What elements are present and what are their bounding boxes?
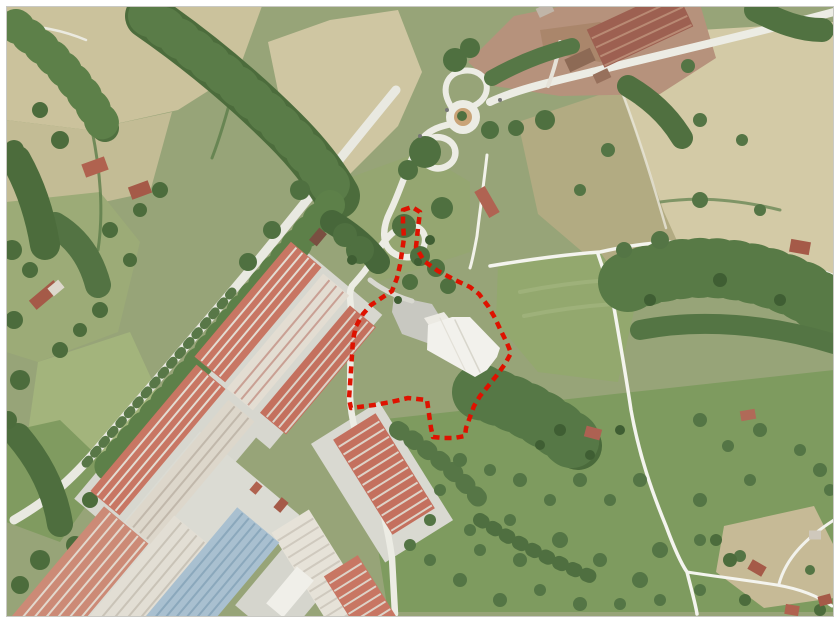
tree [11, 576, 29, 594]
tree [744, 474, 756, 486]
tree [5, 311, 23, 329]
tree [152, 182, 168, 198]
tree [573, 473, 587, 487]
tree [51, 131, 69, 149]
tree [22, 262, 38, 278]
tree [513, 473, 527, 487]
tree [710, 534, 722, 546]
tree [654, 594, 666, 606]
tree [693, 413, 707, 427]
tree [493, 593, 507, 607]
tree [2, 240, 22, 260]
page [0, 0, 840, 630]
tree [616, 242, 632, 258]
tree [464, 524, 476, 536]
tree [434, 484, 446, 496]
tree [681, 59, 695, 73]
tree [133, 203, 147, 217]
roundabout-tree [457, 111, 467, 121]
tree [504, 514, 516, 526]
tree [263, 221, 281, 239]
tree-dark [394, 296, 402, 304]
tree-dark [774, 294, 786, 306]
tree [404, 539, 416, 551]
tree [574, 184, 586, 196]
tree [651, 231, 669, 249]
tree [552, 532, 568, 548]
tree [692, 192, 708, 208]
tree-dark [713, 273, 727, 287]
tree [30, 550, 50, 570]
tree [484, 464, 496, 476]
tree [290, 180, 310, 200]
tree-dark [414, 258, 422, 266]
tree [15, 171, 33, 189]
tree [73, 323, 87, 337]
tree [453, 573, 467, 587]
tree [424, 514, 436, 526]
tree [431, 197, 453, 219]
tree [604, 494, 616, 506]
tree [102, 222, 118, 238]
tree [10, 370, 30, 390]
tree-dark [554, 424, 566, 436]
tree [614, 598, 626, 610]
tree [693, 113, 707, 127]
tree [440, 278, 456, 294]
vehicle [445, 108, 449, 112]
tree [633, 473, 647, 487]
vehicle [418, 134, 422, 138]
tree [481, 121, 499, 139]
tree [424, 554, 436, 566]
tree [694, 584, 706, 596]
aerial-photo-frame [0, 0, 840, 630]
tree-dark [585, 450, 595, 460]
tree-dark [425, 235, 435, 245]
aerial-photo [0, 0, 840, 630]
tree [601, 143, 615, 157]
tree [92, 302, 108, 318]
tree [805, 565, 815, 575]
tree [593, 553, 607, 567]
vehicle [498, 98, 502, 102]
tree [453, 453, 467, 467]
tree [460, 38, 480, 58]
tree-dark [615, 425, 625, 435]
tree [573, 597, 587, 611]
tree [513, 553, 527, 567]
tree [32, 102, 48, 118]
tree-dark [347, 255, 357, 265]
tree [474, 544, 486, 556]
tree [652, 542, 668, 558]
tree [398, 160, 418, 180]
tree [693, 493, 707, 507]
tree [544, 494, 556, 506]
tree [333, 223, 357, 247]
tree-dark [535, 440, 545, 450]
tree [753, 423, 767, 437]
tree [794, 444, 806, 456]
tree [694, 534, 706, 546]
tree [402, 274, 418, 290]
tree [813, 463, 827, 477]
tree [52, 342, 68, 358]
tree [739, 594, 751, 606]
tree [736, 134, 748, 146]
tree-dark [644, 294, 656, 306]
tree [754, 204, 766, 216]
tree [239, 253, 257, 271]
tree [722, 440, 734, 452]
house-white [809, 531, 821, 540]
tree [632, 572, 648, 588]
tree [508, 120, 524, 136]
tree [824, 484, 836, 496]
tree [535, 110, 555, 130]
tree [723, 553, 737, 567]
tree [123, 253, 137, 267]
map-scene [0, 0, 836, 630]
tree [534, 584, 546, 596]
